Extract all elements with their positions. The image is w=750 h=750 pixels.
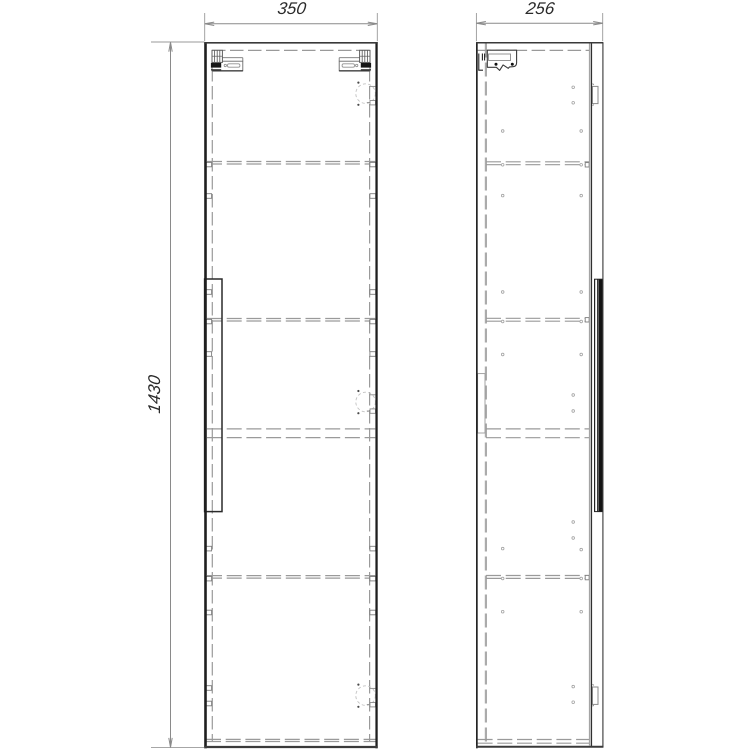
svg-text:350: 350	[276, 0, 308, 18]
svg-text:256: 256	[524, 0, 557, 18]
svg-text:1430: 1430	[145, 374, 164, 415]
